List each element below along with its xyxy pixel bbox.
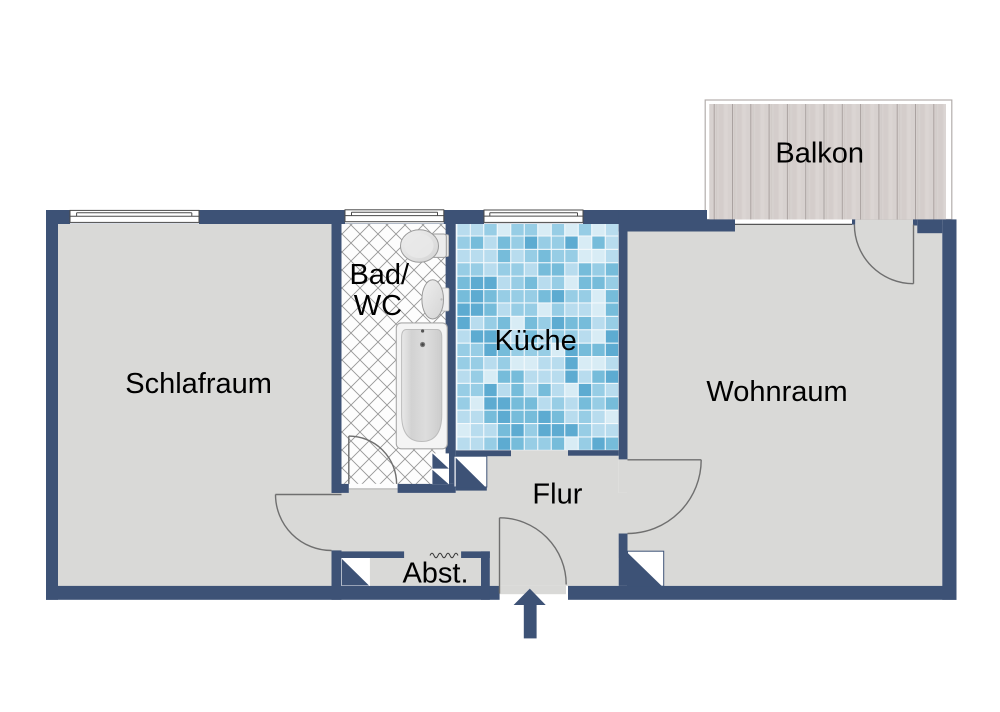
svg-text:Schlafraum: Schlafraum [125, 368, 272, 400]
svg-text:Bad/: Bad/ [349, 259, 410, 291]
svg-text:Balkon: Balkon [775, 137, 864, 169]
svg-text:Flur: Flur [532, 479, 582, 511]
svg-text:Küche: Küche [494, 325, 576, 357]
svg-text:Wohnraum: Wohnraum [706, 376, 847, 408]
svg-text:WC: WC [354, 290, 402, 322]
svg-text:Abst.: Abst. [402, 557, 468, 589]
